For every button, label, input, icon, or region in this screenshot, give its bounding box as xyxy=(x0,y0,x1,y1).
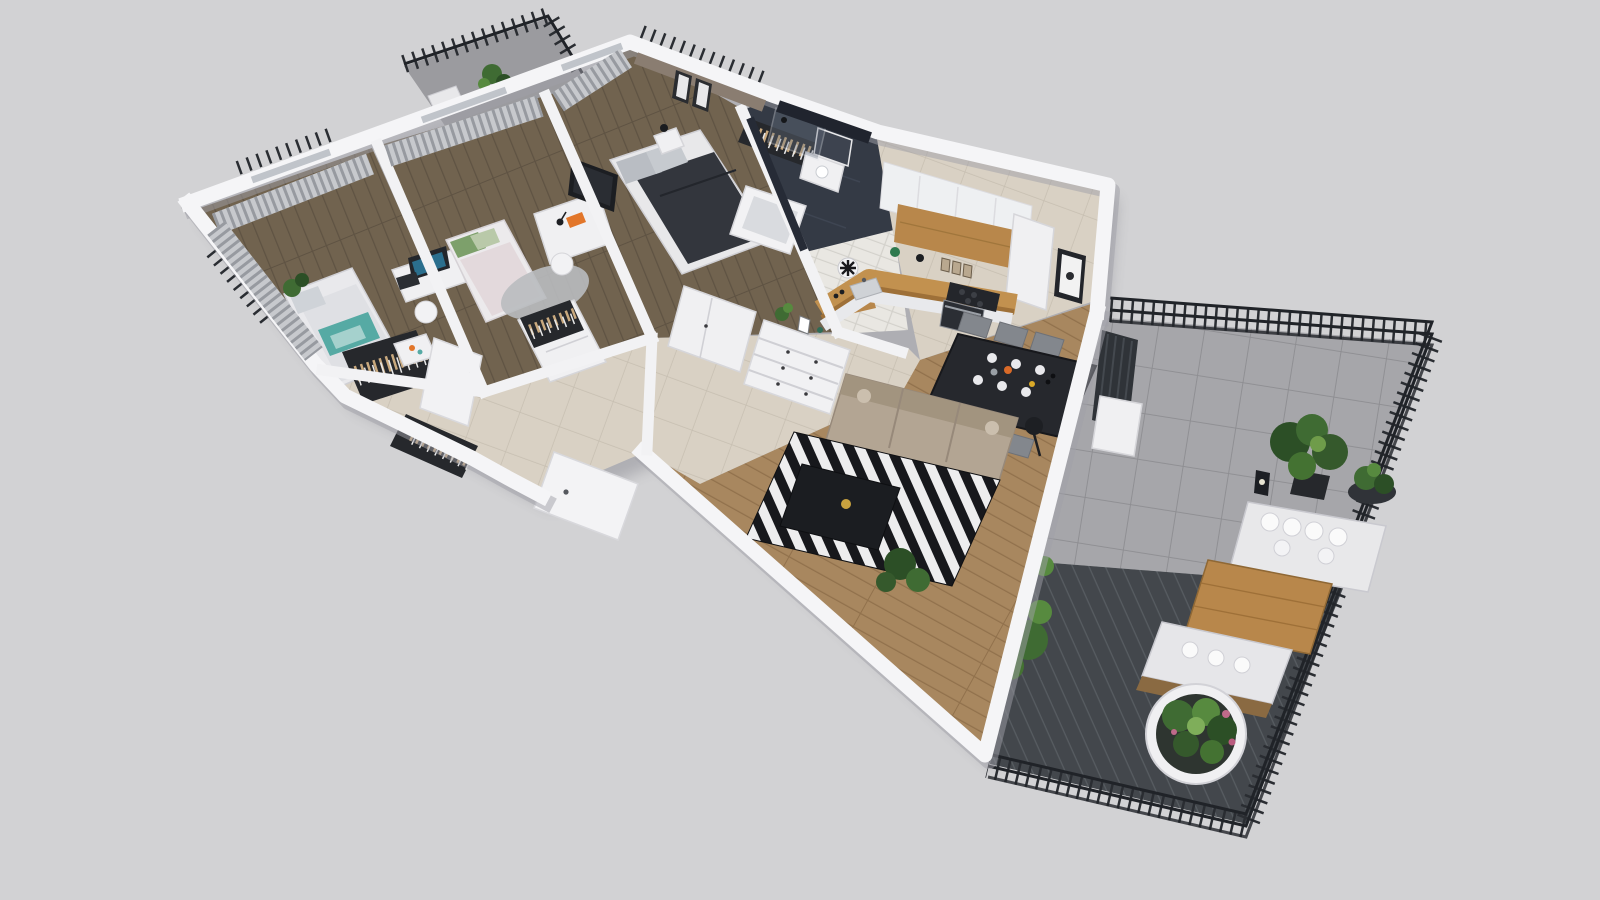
terrace-wall-stub xyxy=(1092,396,1142,456)
floor-plan-render xyxy=(0,0,1600,900)
desk-chair xyxy=(415,301,437,323)
ventilation-fan xyxy=(838,258,858,278)
lantern xyxy=(1254,470,1270,496)
wall-hall-living xyxy=(647,338,652,450)
butterfly-picture xyxy=(1054,248,1086,304)
shower-head xyxy=(781,117,787,123)
round-planter xyxy=(1146,684,1246,784)
white-chair xyxy=(551,253,573,275)
floor-plan-svg xyxy=(0,0,1600,900)
